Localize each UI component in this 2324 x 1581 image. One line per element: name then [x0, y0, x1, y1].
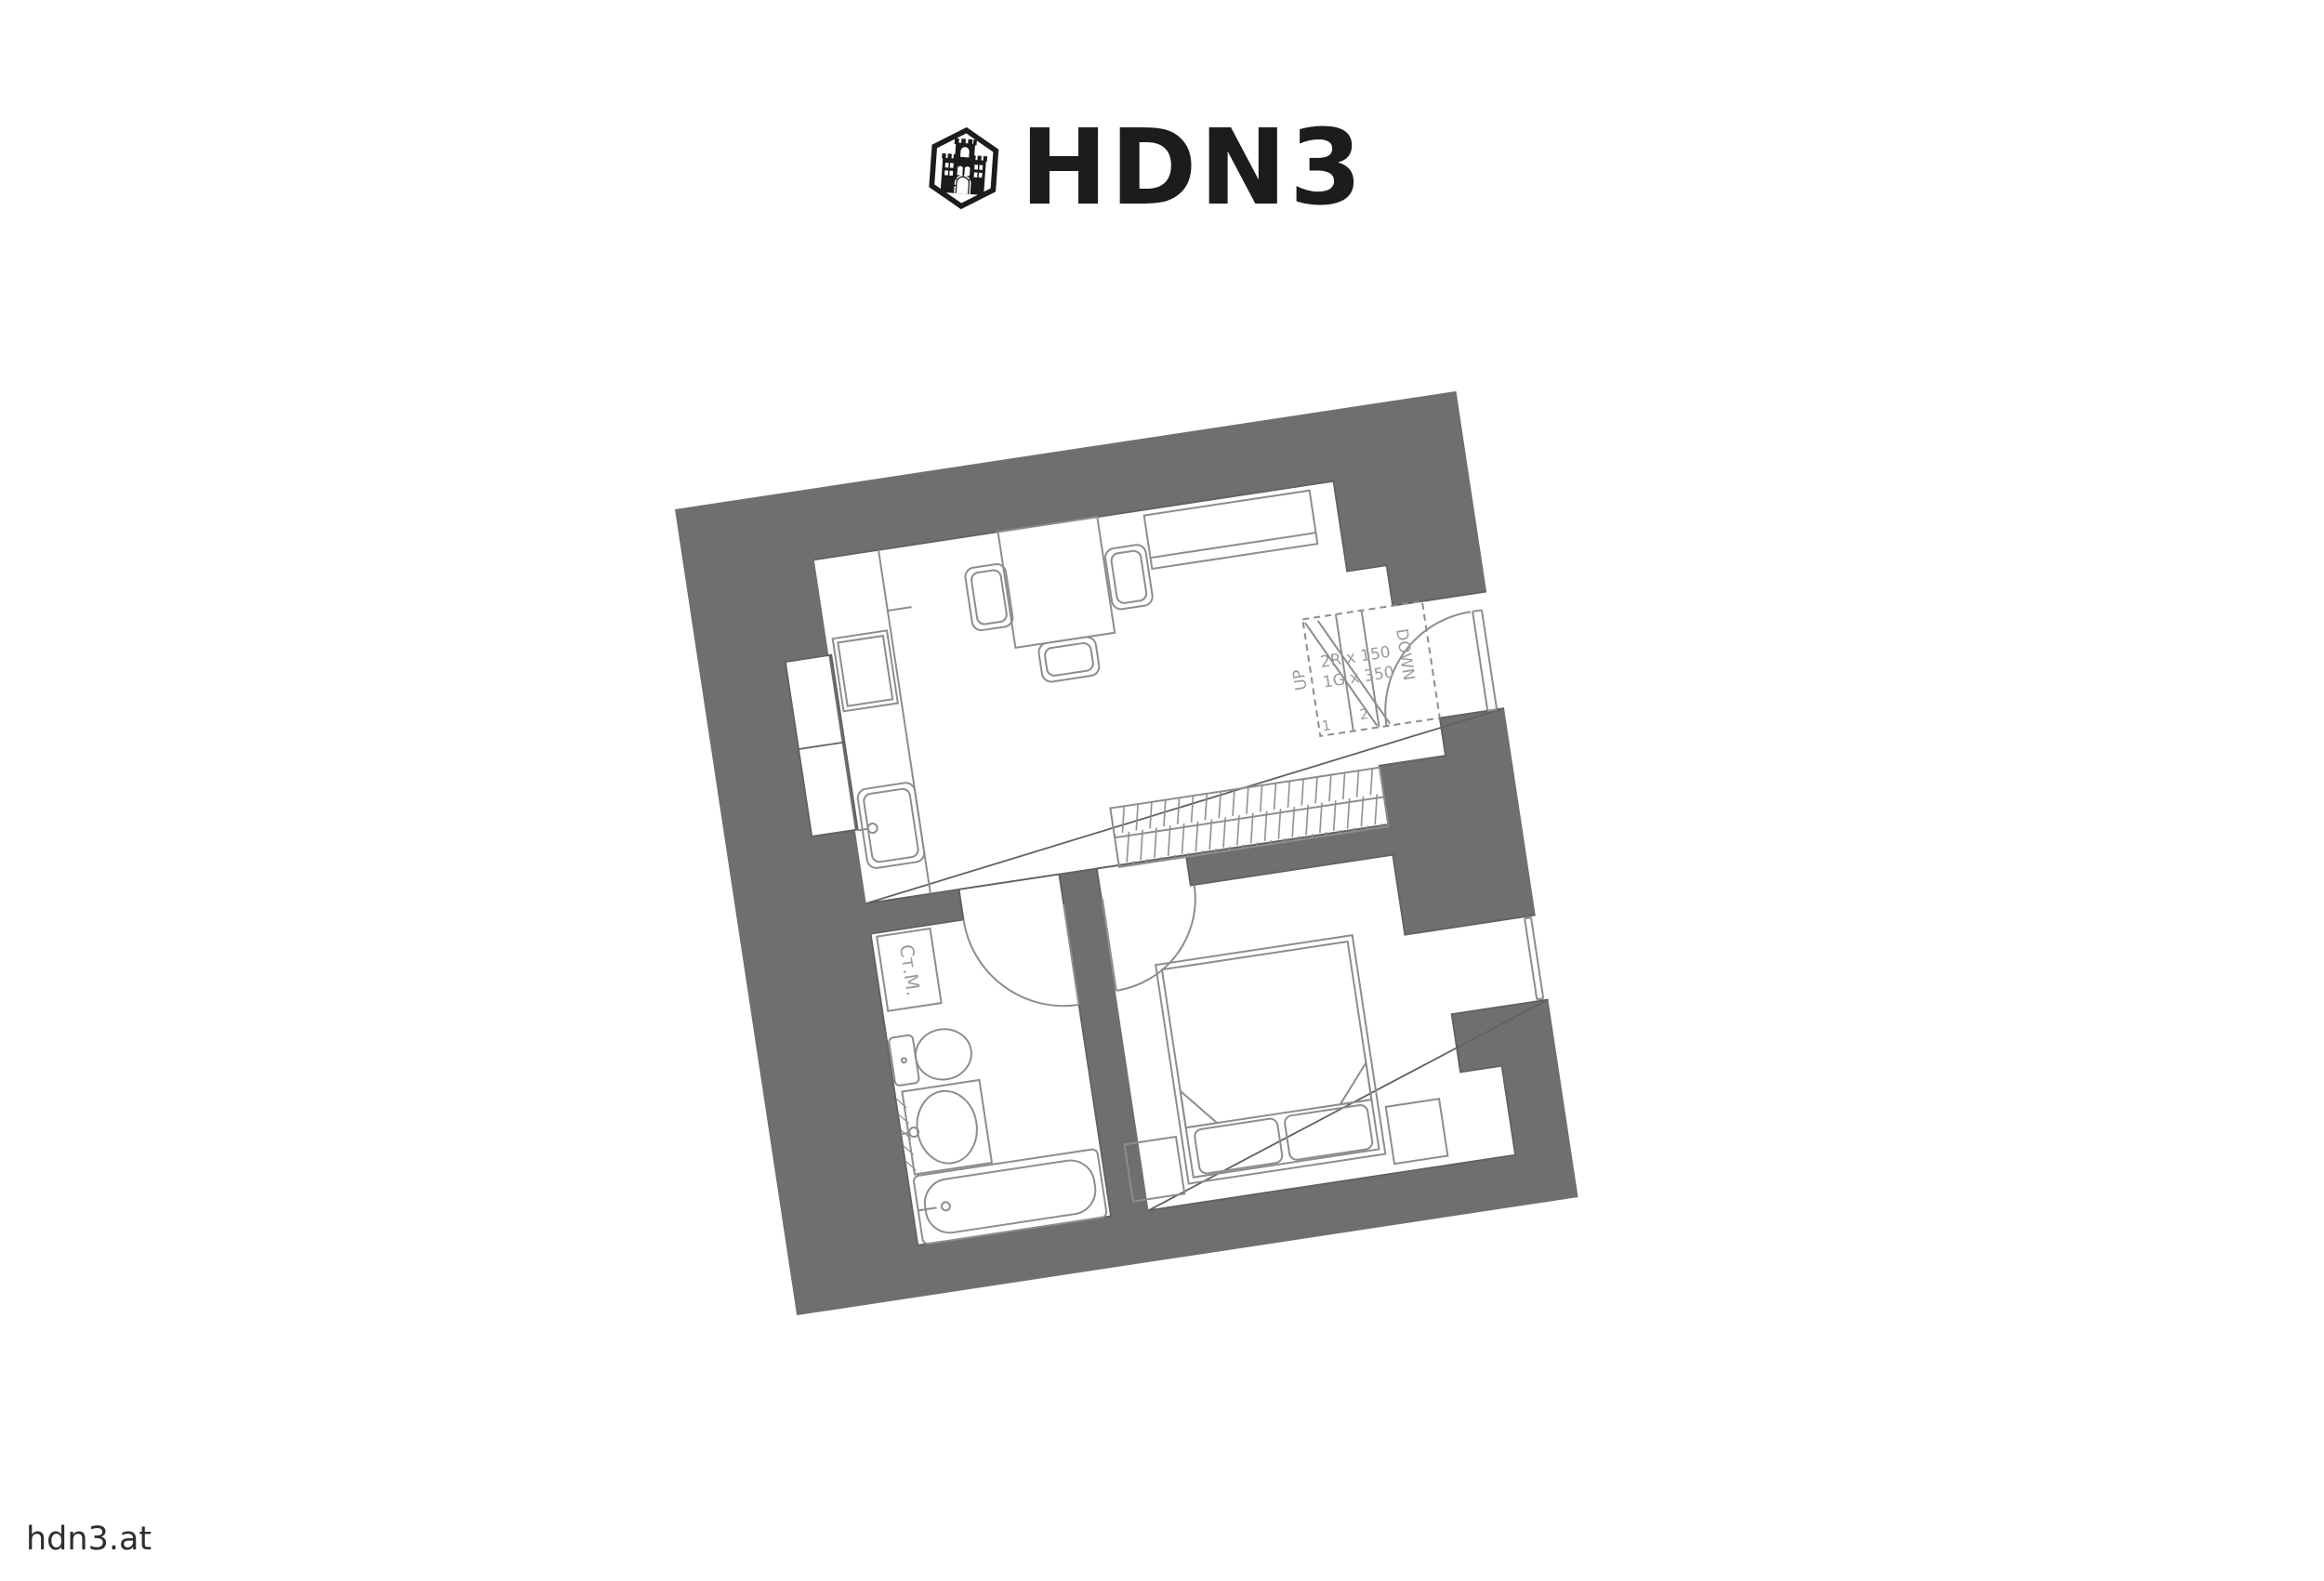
nightstand-right [1386, 1099, 1448, 1164]
cooktop [833, 630, 898, 711]
bedroom-window [1525, 917, 1543, 999]
toilet [889, 1025, 975, 1087]
washbasin [895, 1080, 992, 1176]
washing-machine-label: Ст.М. [895, 942, 925, 997]
stair-up-label: UP [1289, 668, 1311, 692]
dining-table [998, 517, 1116, 648]
chair-right [1104, 544, 1154, 611]
floor-plan: 2R x 150 1G x 350 UP DOWN 1 2 Ст.М. [0, 0, 2324, 1581]
bedroom-door [1103, 885, 1208, 991]
stair-step-number-2: 2 [1358, 705, 1369, 723]
bathroom-door [964, 904, 1079, 1020]
page-root: HDN3 [0, 0, 2324, 1581]
stair-down-label: DOWN [1392, 627, 1418, 681]
chair-bottom [1037, 636, 1101, 683]
watermark: hdn3.at [26, 1521, 152, 1558]
stair-step-number-1: 1 [1321, 717, 1332, 734]
chair-left [964, 563, 1014, 632]
kitchen-sink [852, 782, 925, 870]
